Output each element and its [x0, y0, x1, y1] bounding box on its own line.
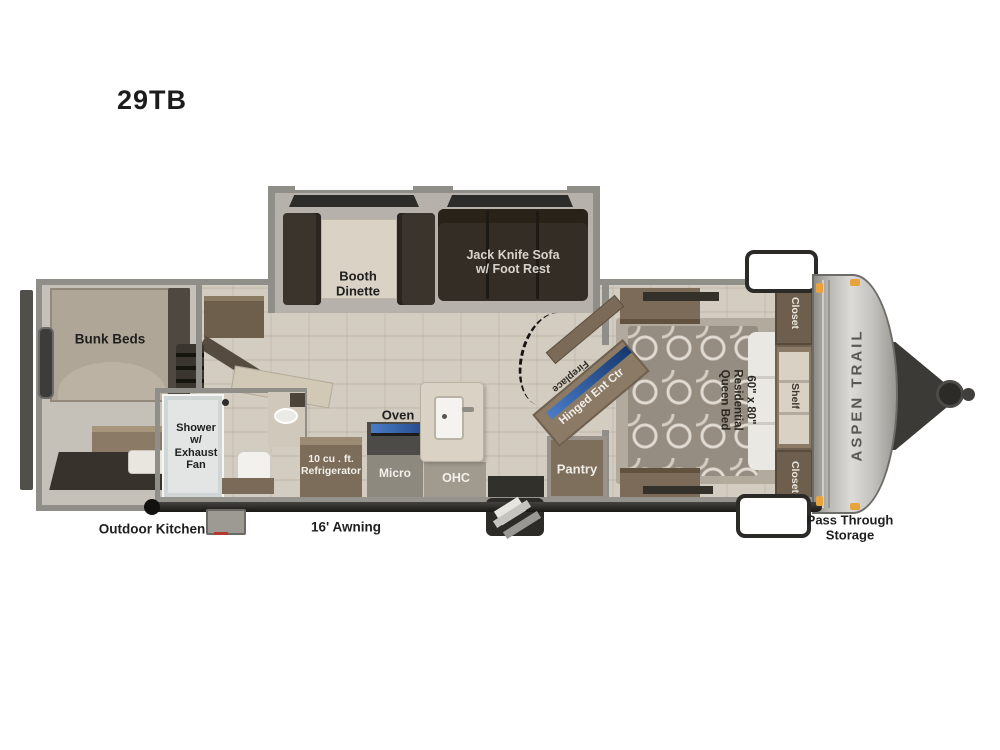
bath-sink — [274, 408, 298, 424]
refrigerator-label: 10 cu . ft. Refrigerator — [301, 454, 361, 478]
floorplan-page: 29TB Bunk Beds Shower w/ Exhaust Fan Boo — [0, 0, 1000, 750]
cap-seam-1 — [822, 280, 824, 508]
closet-bottom-label: Closet — [788, 461, 800, 493]
hall-wardrobe — [204, 296, 264, 338]
shower-label: Shower w/ Exhaust Fan — [175, 422, 218, 472]
marker-light-top-left — [816, 283, 823, 293]
bedroom-dark-strip-bottom — [643, 486, 713, 494]
ohc-label: OHC — [442, 471, 470, 485]
booth-dinette-label: Booth Dinette — [336, 269, 380, 298]
bedroom-shelf-strip — [643, 292, 719, 301]
pass-through-storage-label: Pass Through Storage — [807, 513, 894, 542]
hitch-coupler — [936, 380, 964, 408]
slide-window-right — [447, 195, 573, 207]
dinette-bench-left — [283, 213, 321, 305]
bunk-divider-wall — [196, 285, 202, 388]
sink-drain — [442, 414, 447, 419]
bath-bench — [222, 478, 274, 494]
bunk-beds-label: Bunk Beds — [75, 331, 146, 346]
awning-label: 16' Awning — [311, 519, 381, 534]
pantry-label: Pantry — [557, 463, 597, 478]
shelf-label: Shelf — [788, 383, 800, 409]
bath-fixture — [290, 393, 305, 407]
page-title: 29TB — [117, 85, 187, 116]
range-burners — [371, 424, 419, 436]
slide-window-left — [289, 195, 419, 207]
marker-light-top-right — [850, 279, 860, 286]
bunk-window — [38, 327, 54, 399]
island-sink — [434, 396, 464, 440]
queen-bed-label: 60" x 80" Residential Queen Bed — [718, 369, 757, 430]
oven-label: Oven — [382, 409, 415, 424]
sink-faucet — [462, 407, 474, 412]
slide-top-gap-right — [453, 186, 567, 190]
brand-logo: ASPEN TRAIL — [850, 328, 867, 461]
marker-light-bottom-left — [816, 496, 823, 506]
slide-top-gap-left — [295, 186, 413, 190]
closet-top-label: Closet — [788, 297, 800, 329]
rear-bumper — [20, 290, 33, 490]
awning-endcap — [144, 499, 160, 515]
awning-bar — [150, 502, 822, 512]
shower-head — [222, 399, 229, 406]
hitch-knob — [962, 388, 975, 401]
passthrough-door-bottom — [736, 494, 811, 538]
dinette-bench-right — [397, 213, 435, 305]
micro-label: Micro — [379, 467, 411, 481]
outdoor-kitchen-label: Outdoor Kitchen — [99, 521, 206, 536]
jack-knife-sofa-label: Jack Knife Sofa w/ Foot Rest — [466, 248, 559, 276]
passthrough-door-top — [745, 250, 818, 293]
cap-seam-2 — [828, 280, 830, 508]
marker-light-bottom-right — [850, 503, 860, 510]
outdoor-kitchen-flap-marker — [214, 532, 228, 535]
